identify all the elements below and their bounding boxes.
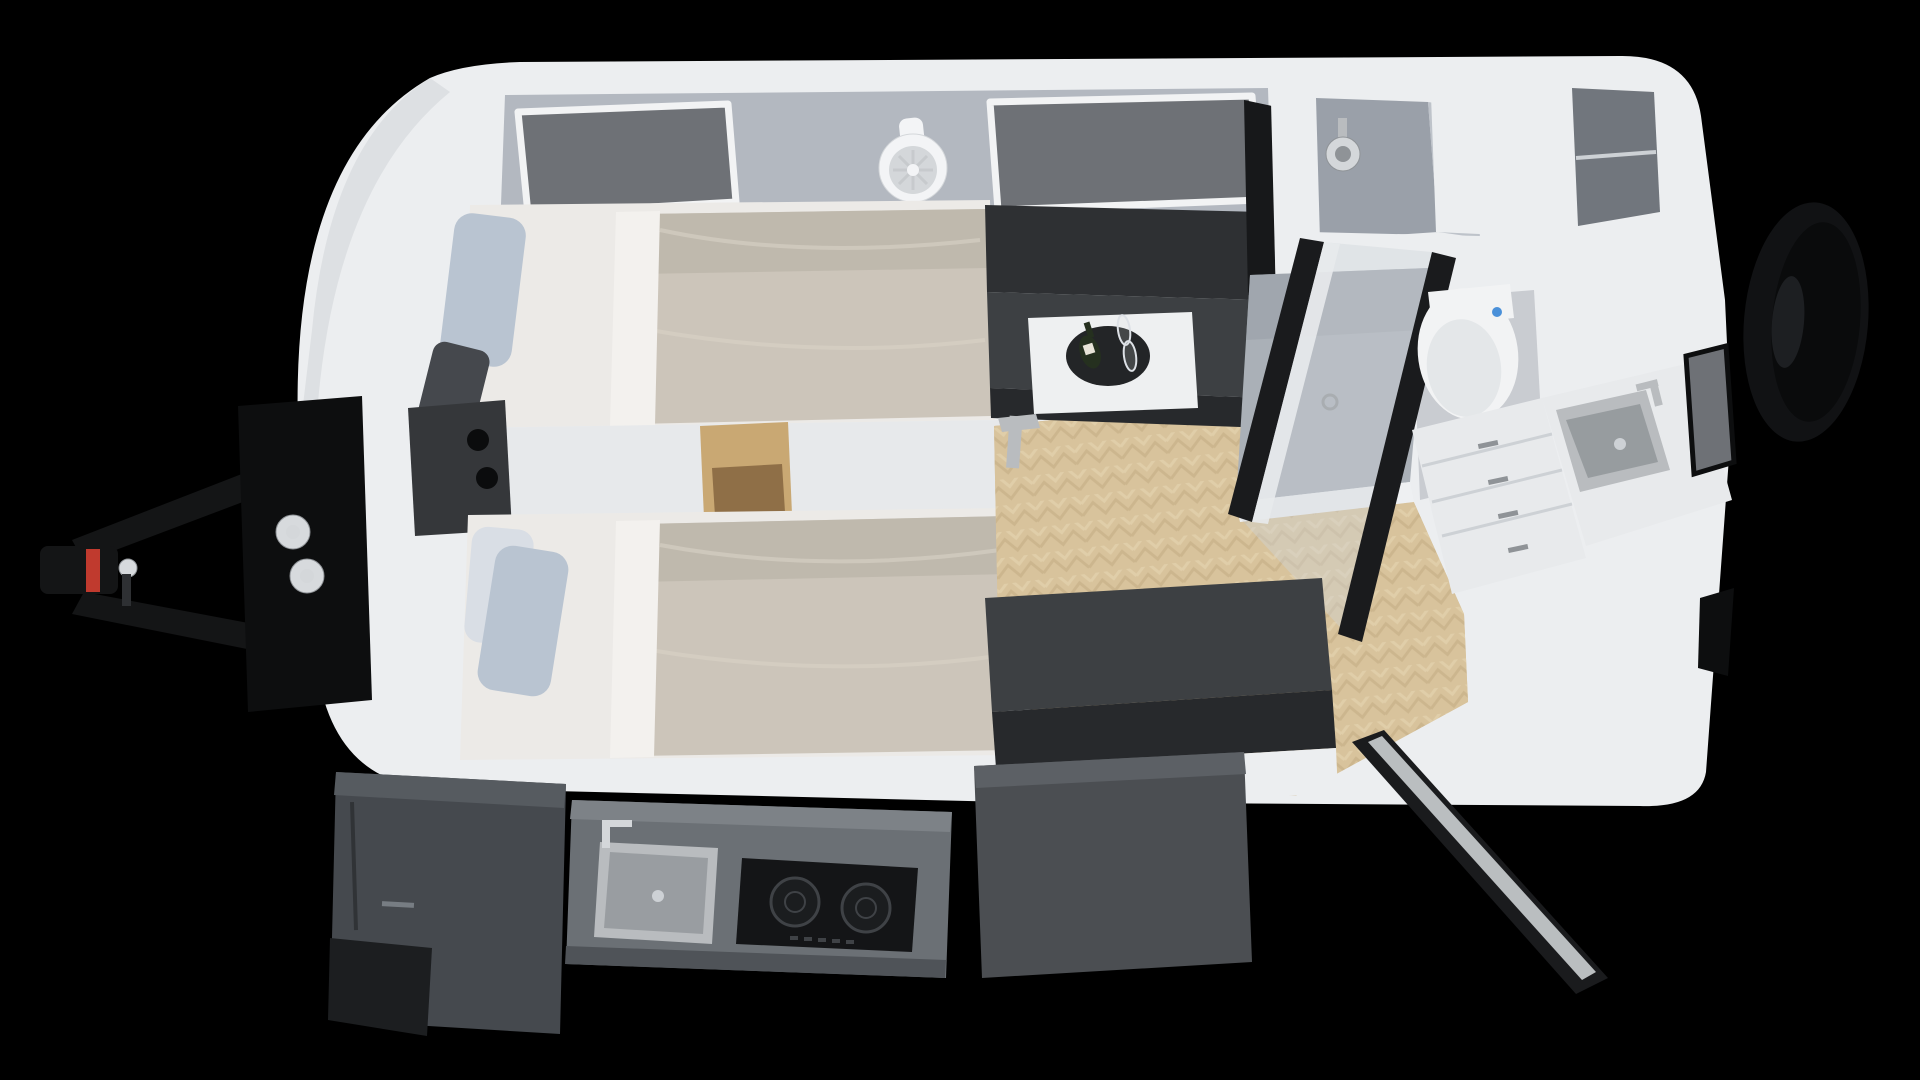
front-storage-box [238,396,372,712]
cup-holder-2 [476,467,498,489]
basin-drain [1614,438,1626,450]
fan-hub [907,164,919,176]
sink-drain [652,890,664,902]
jockey-wheel-stem [122,574,131,606]
front-box-body [238,396,372,712]
bathroom-top-wall [1430,68,1564,238]
fridge-dark-wedge [328,938,432,1036]
cup-holder-1 [467,429,489,451]
flush-button [1492,307,1502,317]
gas-bottle-1-cap [286,525,300,539]
burner-right [842,884,890,932]
pullout-kitchen [565,800,952,978]
coupler-red-band [86,549,100,592]
scene-canvas [0,0,1920,1080]
tv-screen [1244,100,1276,300]
serving-tray [1066,326,1150,386]
fridge-slide [328,772,566,1036]
bench-backrest [985,205,1264,300]
side-window [1686,346,1734,474]
bed-upper [416,200,995,433]
kitchen-faucet-spout [602,820,632,827]
burner-left [771,878,819,926]
outdoor-table [974,752,1252,978]
bed-lower [460,506,1026,760]
sofa-seat [985,578,1332,712]
sheet-fold [610,520,660,758]
induction-cooktop [736,858,918,952]
cubby-inner [712,464,785,516]
sheet-fold [610,211,660,426]
hitch-coupler [40,546,118,594]
front-window-right [990,96,1260,210]
gas-bottle-2-cap [300,569,314,583]
floorplan-render [0,0,1920,1080]
shell-side-trim [1698,588,1734,676]
duvet-shade [638,209,988,274]
shower-head-core [1335,146,1351,162]
front-window-left [518,104,736,214]
